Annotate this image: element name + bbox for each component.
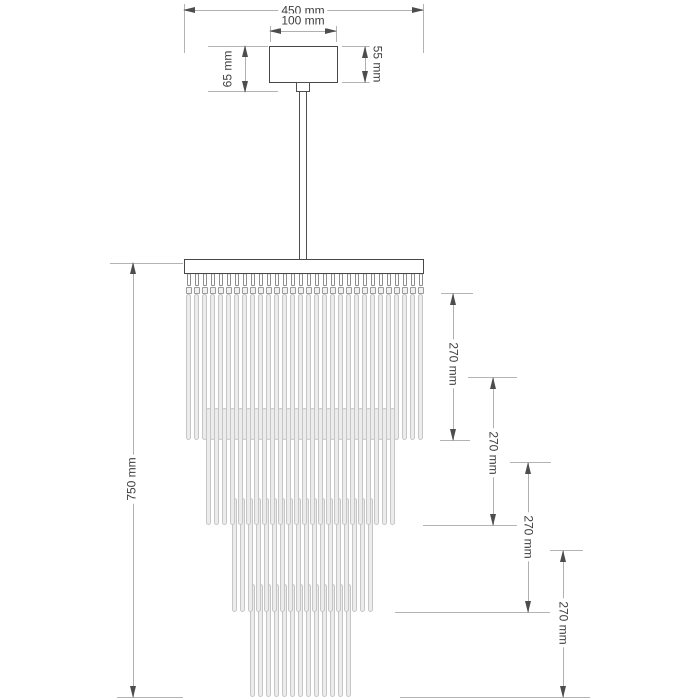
hanging-hook-icon bbox=[227, 273, 231, 286]
hook-bead bbox=[394, 287, 400, 294]
hanging-hook-icon bbox=[323, 273, 327, 286]
hook-bead bbox=[194, 287, 200, 294]
arrowhead-down-icon bbox=[450, 429, 456, 441]
dim-label-tier3-drop: 270 mm bbox=[520, 512, 535, 561]
hook-bead bbox=[386, 287, 392, 294]
hook-bead bbox=[362, 287, 368, 294]
hanging-hook-icon bbox=[315, 273, 319, 286]
crystal-rod bbox=[402, 294, 407, 440]
hook-bead bbox=[418, 287, 424, 294]
chandelier-dimension-drawing: 450 mm 100 mm 65 mm 55 mm 750 mm 270 mm … bbox=[0, 0, 700, 700]
hook-bead bbox=[370, 287, 376, 294]
hanging-hook-icon bbox=[235, 273, 239, 286]
hanging-hook-icon bbox=[395, 273, 399, 286]
crystal-rod bbox=[378, 294, 383, 440]
arrowhead-up-icon bbox=[450, 293, 456, 305]
arrowhead-down-icon bbox=[130, 686, 136, 698]
hanging-hook-icon bbox=[331, 273, 335, 286]
crystal-rod bbox=[354, 294, 359, 440]
hook-bead bbox=[218, 287, 224, 294]
arrowhead-up-icon bbox=[130, 262, 136, 274]
arrowhead-up-icon bbox=[242, 45, 248, 57]
crystal-rod bbox=[306, 294, 311, 440]
tier-1 bbox=[0, 0, 700, 700]
hanging-hook-icon bbox=[363, 273, 367, 286]
crystal-rod bbox=[298, 294, 303, 440]
hanging-hook-icon bbox=[379, 273, 383, 286]
hanging-hook-icon bbox=[219, 273, 223, 286]
crystal-rod bbox=[282, 294, 287, 440]
arrowhead-up-icon bbox=[362, 46, 368, 58]
dim-canopy-width bbox=[270, 31, 336, 32]
crystal-rod bbox=[330, 294, 335, 440]
arrowhead-down-icon bbox=[490, 514, 496, 526]
hanging-hook-icon bbox=[243, 273, 247, 286]
crystal-rod bbox=[362, 294, 367, 440]
hanging-hook-icon bbox=[251, 273, 255, 286]
dim-label-tier4-drop: 270 mm bbox=[555, 598, 570, 647]
hook-bead bbox=[338, 287, 344, 294]
crystal-rod bbox=[346, 294, 351, 440]
hook-bead bbox=[314, 287, 320, 294]
hanging-hook-icon bbox=[419, 273, 423, 286]
hook-bead bbox=[378, 287, 384, 294]
crystal-rod bbox=[410, 294, 415, 440]
crystal-rod bbox=[418, 294, 423, 440]
ext-line bbox=[441, 293, 473, 294]
dim-label-tier2-drop: 270 mm bbox=[485, 428, 500, 477]
hook-bead bbox=[402, 287, 408, 294]
ext-line bbox=[117, 697, 183, 698]
hanging-hook-icon bbox=[195, 273, 199, 286]
arrowhead-up-icon bbox=[490, 377, 496, 389]
ext-line bbox=[110, 263, 183, 264]
hook-bead bbox=[354, 287, 360, 294]
arrowhead-down-icon bbox=[560, 686, 566, 698]
hook-bead bbox=[346, 287, 352, 294]
hanging-hook-icon bbox=[307, 273, 311, 286]
dim-label-canopy-height-left: 65 mm bbox=[220, 48, 235, 91]
hook-bead bbox=[186, 287, 192, 294]
ext-line bbox=[423, 525, 517, 526]
hook-bead bbox=[266, 287, 272, 294]
hanging-hook-icon bbox=[259, 273, 263, 286]
arrowhead-up-icon bbox=[525, 462, 531, 474]
hanging-hook-icon bbox=[299, 273, 303, 286]
hook-bead bbox=[282, 287, 288, 294]
hanging-hook-icon bbox=[371, 273, 375, 286]
mounting-plate bbox=[184, 259, 424, 274]
arrowhead-down-icon bbox=[362, 71, 368, 83]
ext-line bbox=[208, 46, 268, 47]
dim-label-overall-height: 750 mm bbox=[124, 454, 139, 503]
arrowhead-down-icon bbox=[525, 601, 531, 613]
hanging-hook-icon bbox=[203, 273, 207, 286]
crystal-rod bbox=[274, 294, 279, 440]
arrowhead-left-icon bbox=[183, 7, 195, 13]
crystal-rod bbox=[194, 294, 199, 440]
crystal-rod bbox=[266, 294, 271, 440]
hook-bead bbox=[258, 287, 264, 294]
crystal-rod bbox=[322, 294, 327, 440]
crystal-rod bbox=[290, 294, 295, 440]
dim-label-canopy-height-right: 55 mm bbox=[369, 43, 384, 86]
crystal-rod bbox=[250, 294, 255, 440]
hook-bead bbox=[242, 287, 248, 294]
hanging-hook-icon bbox=[283, 273, 287, 286]
crystal-rod bbox=[370, 294, 375, 440]
crystal-rod bbox=[386, 294, 391, 440]
crystal-rod bbox=[218, 294, 223, 440]
hook-bead bbox=[330, 287, 336, 294]
hook-bead bbox=[322, 287, 328, 294]
hook-bead bbox=[306, 287, 312, 294]
hanging-hook-icon bbox=[355, 273, 359, 286]
crystal-rod bbox=[258, 294, 263, 440]
arrowhead-right-icon bbox=[325, 28, 337, 34]
hook-bead bbox=[290, 287, 296, 294]
hook-bead bbox=[202, 287, 208, 294]
hanging-hook-icon bbox=[267, 273, 271, 286]
arrowhead-down-icon bbox=[242, 81, 248, 93]
hanging-hook-icon bbox=[275, 273, 279, 286]
dim-label-canopy-width: 100 mm bbox=[278, 13, 327, 28]
crystal-rod bbox=[234, 294, 239, 440]
crystal-rod bbox=[202, 294, 207, 440]
crystal-rod bbox=[394, 294, 399, 440]
hook-bead bbox=[298, 287, 304, 294]
hanging-hook-icon bbox=[387, 273, 391, 286]
hook-bead bbox=[410, 287, 416, 294]
dim-label-tier1-drop: 270 mm bbox=[445, 339, 460, 388]
hanging-hook-icon bbox=[211, 273, 215, 286]
hanging-hook-icon bbox=[339, 273, 343, 286]
hanging-hook-icon bbox=[187, 273, 191, 286]
hook-bead bbox=[210, 287, 216, 294]
hanging-hook-icon bbox=[411, 273, 415, 286]
hook-bead bbox=[274, 287, 280, 294]
arrowhead-up-icon bbox=[560, 550, 566, 562]
dim-canopy-height-left bbox=[245, 46, 246, 92]
hook-bead bbox=[226, 287, 232, 294]
arrowhead-left-icon bbox=[269, 28, 281, 34]
hanging-hook-icon bbox=[347, 273, 351, 286]
crystal-rod bbox=[338, 294, 343, 440]
hook-bead bbox=[234, 287, 240, 294]
crystal-rod bbox=[186, 294, 191, 440]
crystal-rod bbox=[314, 294, 319, 440]
arrowhead-right-icon bbox=[412, 7, 424, 13]
hook-bead bbox=[250, 287, 256, 294]
crystal-rod bbox=[210, 294, 215, 440]
hanging-hook-icon bbox=[291, 273, 295, 286]
ext-line bbox=[550, 550, 583, 551]
crystal-rod bbox=[242, 294, 247, 440]
dim-canopy-height-right bbox=[365, 47, 366, 82]
chandelier-fringe-tiers bbox=[0, 0, 700, 700]
crystal-rod bbox=[226, 294, 231, 440]
hanging-hook-icon bbox=[403, 273, 407, 286]
